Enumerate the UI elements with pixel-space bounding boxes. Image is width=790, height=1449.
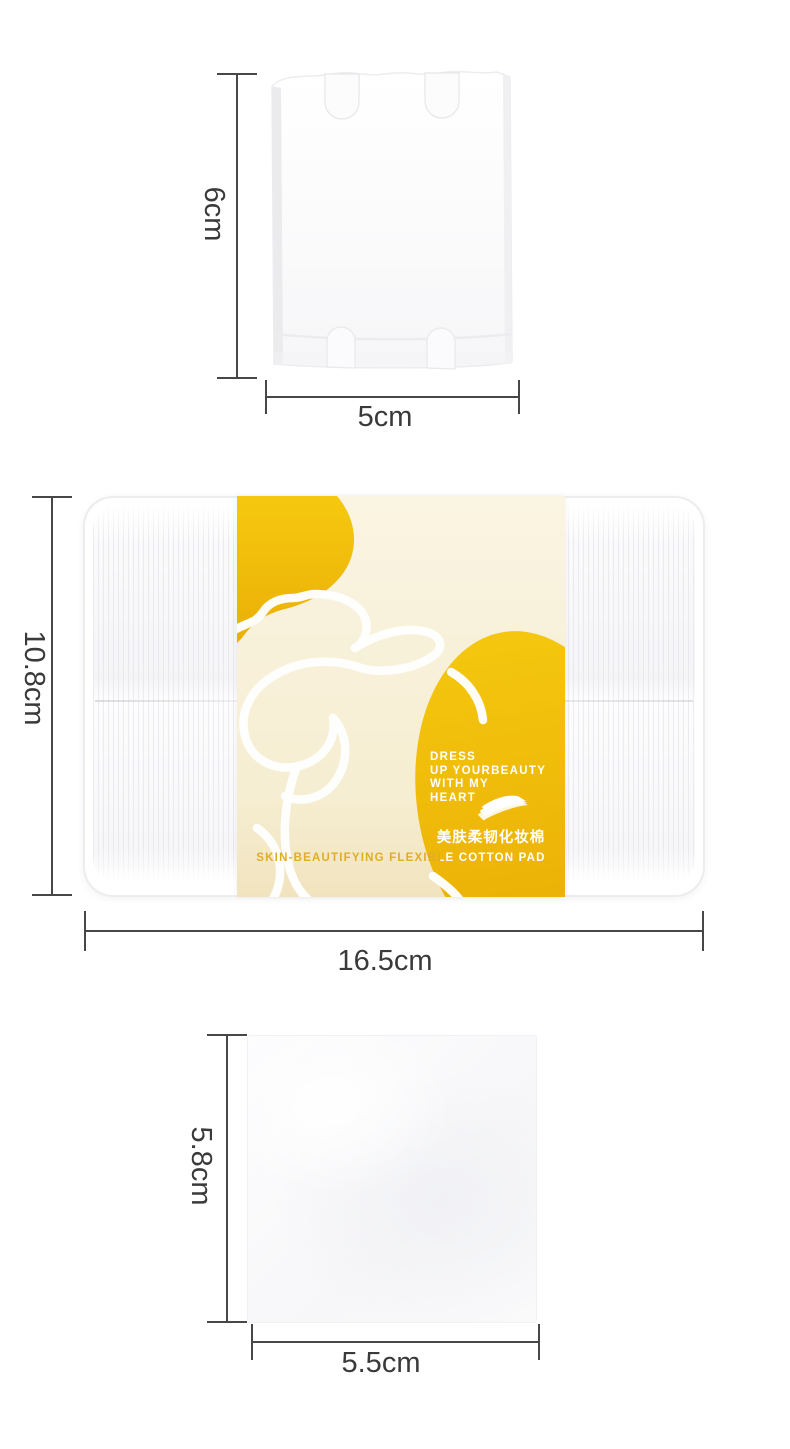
bottom-pad-width-dimension-line [252,1341,540,1343]
dimension-cap [84,911,86,951]
bottom-pad-height-label: 5.8cm [151,1116,251,1216]
dimension-cap [32,894,72,896]
box-width-label: 16.5cm [310,944,460,978]
dimension-cap [251,1324,253,1360]
tagline-line: UP YOURBEAUTY [430,765,546,779]
dimension-cap [538,1324,540,1360]
cotton-pad-top-view-image [263,64,521,380]
dimension-cap [702,911,704,951]
dimension-cap [32,496,72,498]
tagline-line: DRESS [430,751,546,765]
cotton-pad-stack-icon [472,790,530,822]
cotton-pad-bottom-view-image [247,1035,537,1323]
box-width-dimension-line [85,930,704,932]
dimension-cap [265,380,267,414]
dimension-cap [217,73,257,75]
top-pad-width-label: 5cm [325,400,445,434]
bottom-pad-width-label: 5.5cm [316,1346,446,1380]
dimension-cap [207,1034,247,1036]
dimension-cap [518,380,520,414]
dimension-cap [207,1321,247,1323]
box-height-label: 10.8cm [0,628,84,728]
cotton-pad-dimension-infographic: 6cm 5cm [0,0,790,1449]
top-pad-height-label: 6cm [164,164,264,264]
chinese-product-name: 美肤柔韧化妆棉 [423,826,559,847]
dimension-cap [217,377,257,379]
top-pad-width-dimension-line [266,396,520,398]
box-label-band: DRESS UP YOURBEAUTY WITH MY HEART 美肤柔韧化妆… [237,496,565,897]
